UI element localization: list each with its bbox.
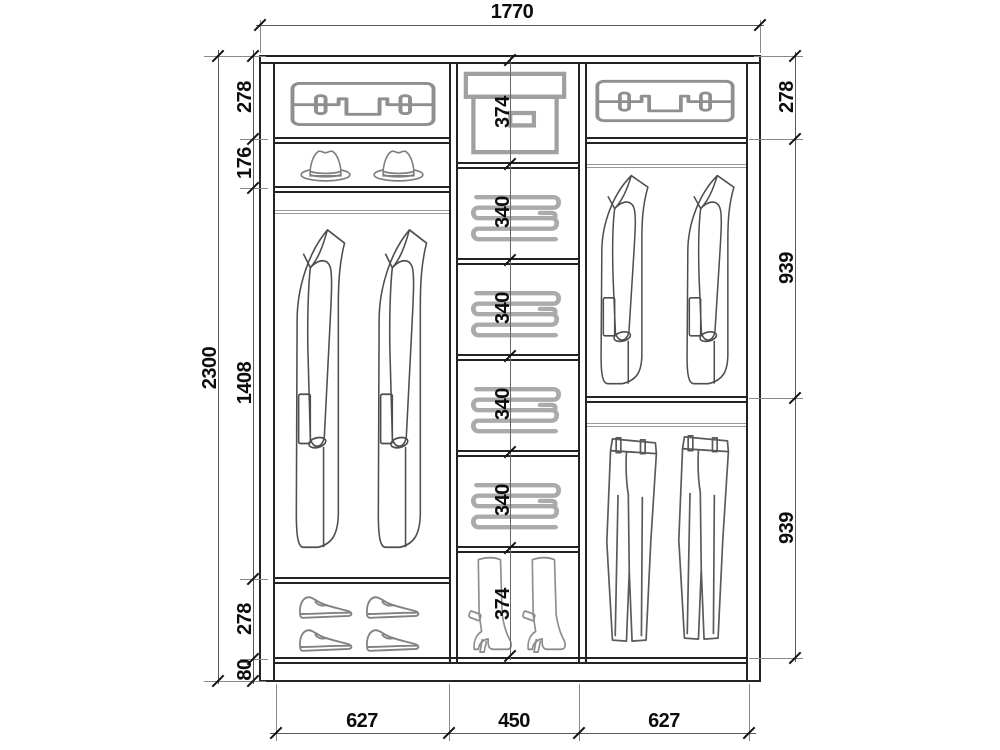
shelf-line bbox=[458, 551, 578, 553]
shelf-line bbox=[458, 359, 578, 361]
folded-clothes-stack-icon bbox=[463, 191, 569, 247]
hanging-rod bbox=[275, 213, 449, 214]
shelf-line bbox=[587, 401, 746, 403]
dress-shoe-icon bbox=[296, 626, 354, 654]
dim-label-middle-0: 374 bbox=[492, 80, 514, 144]
dim-line-bottom-segments bbox=[270, 733, 756, 734]
storage-box-icon bbox=[463, 71, 567, 155]
shelf-line bbox=[458, 354, 578, 356]
suit-jacket-icon bbox=[678, 169, 746, 387]
extension-line bbox=[204, 56, 266, 57]
dim-label-middle-2: 340 bbox=[492, 276, 514, 340]
dim-label-middle-1: 340 bbox=[492, 180, 514, 244]
shelf-line bbox=[275, 186, 449, 188]
folded-clothes-stack-icon bbox=[463, 383, 569, 439]
left-inner-wall bbox=[273, 62, 275, 680]
fedora-hat-icon bbox=[299, 146, 352, 182]
partition-right-b bbox=[585, 62, 587, 662]
shelf-line bbox=[587, 396, 746, 398]
dim-label-left-1: 176 bbox=[234, 131, 256, 195]
right-inner-wall bbox=[746, 62, 748, 680]
wardrobe-elevation-diagram: 1770 2300 278 176 1408 278 80 278 939 93… bbox=[0, 0, 1000, 750]
shelf-line bbox=[275, 577, 449, 579]
shelf-line bbox=[458, 263, 578, 265]
shelf-line bbox=[458, 450, 578, 452]
trousers-icon bbox=[604, 434, 662, 646]
suit-jacket-icon bbox=[592, 169, 660, 387]
dim-label-bottom-1: 450 bbox=[472, 710, 556, 732]
folded-clothes-stack-icon bbox=[463, 287, 569, 343]
partition-left-a bbox=[449, 62, 451, 662]
plinth-shelf-b bbox=[273, 662, 748, 664]
dim-label-total-width: 1770 bbox=[470, 1, 554, 23]
suitcase-icon bbox=[289, 79, 437, 129]
shelf-line bbox=[458, 258, 578, 260]
shelf-line bbox=[458, 546, 578, 548]
folded-clothes-stack-icon bbox=[463, 479, 569, 535]
suitcase-icon bbox=[594, 77, 736, 125]
shelf-line bbox=[587, 137, 746, 139]
overcoat-icon bbox=[287, 222, 357, 556]
dress-shoe-icon bbox=[296, 593, 354, 621]
dim-label-total-height: 2300 bbox=[199, 336, 221, 400]
partition-right-a bbox=[578, 62, 580, 662]
hanging-rod bbox=[587, 426, 746, 427]
fedora-hat-icon bbox=[372, 146, 425, 182]
dim-label-middle-4: 340 bbox=[492, 468, 514, 532]
dress-shoe-icon bbox=[363, 626, 421, 654]
shelf-line bbox=[275, 582, 449, 584]
hanging-rod bbox=[587, 164, 746, 165]
hanging-rod bbox=[587, 423, 746, 424]
dim-label-right-2: 939 bbox=[776, 496, 798, 560]
dim-label-middle-3: 340 bbox=[492, 372, 514, 436]
dim-label-bottom-0: 627 bbox=[320, 710, 404, 732]
shelf-line bbox=[458, 162, 578, 164]
shelf-line bbox=[275, 191, 449, 193]
dim-line-total-width bbox=[256, 25, 764, 26]
shelf-line bbox=[458, 167, 578, 169]
trousers-icon bbox=[676, 432, 734, 644]
dim-line-right-segments bbox=[795, 52, 796, 662]
dim-label-left-0: 278 bbox=[234, 65, 256, 129]
shelf-line bbox=[275, 142, 449, 144]
dim-label-left-4: 80 bbox=[234, 638, 256, 702]
hanging-rod bbox=[275, 210, 449, 211]
dress-shoe-icon bbox=[363, 593, 421, 621]
dim-label-middle-5: 374 bbox=[492, 572, 514, 636]
dim-line-middle-segments bbox=[510, 56, 511, 660]
high-heel-boot-icon bbox=[520, 556, 566, 654]
hanging-rod bbox=[587, 167, 746, 168]
shelf-line bbox=[587, 142, 746, 144]
shelf-line bbox=[275, 137, 449, 139]
partition-left-b bbox=[456, 62, 458, 662]
dim-label-right-1: 939 bbox=[776, 236, 798, 300]
dim-label-right-0: 278 bbox=[776, 65, 798, 129]
dim-label-left-2: 1408 bbox=[234, 351, 256, 415]
overcoat-icon bbox=[369, 222, 439, 556]
shelf-line bbox=[458, 455, 578, 457]
dim-label-bottom-2: 627 bbox=[622, 710, 706, 732]
